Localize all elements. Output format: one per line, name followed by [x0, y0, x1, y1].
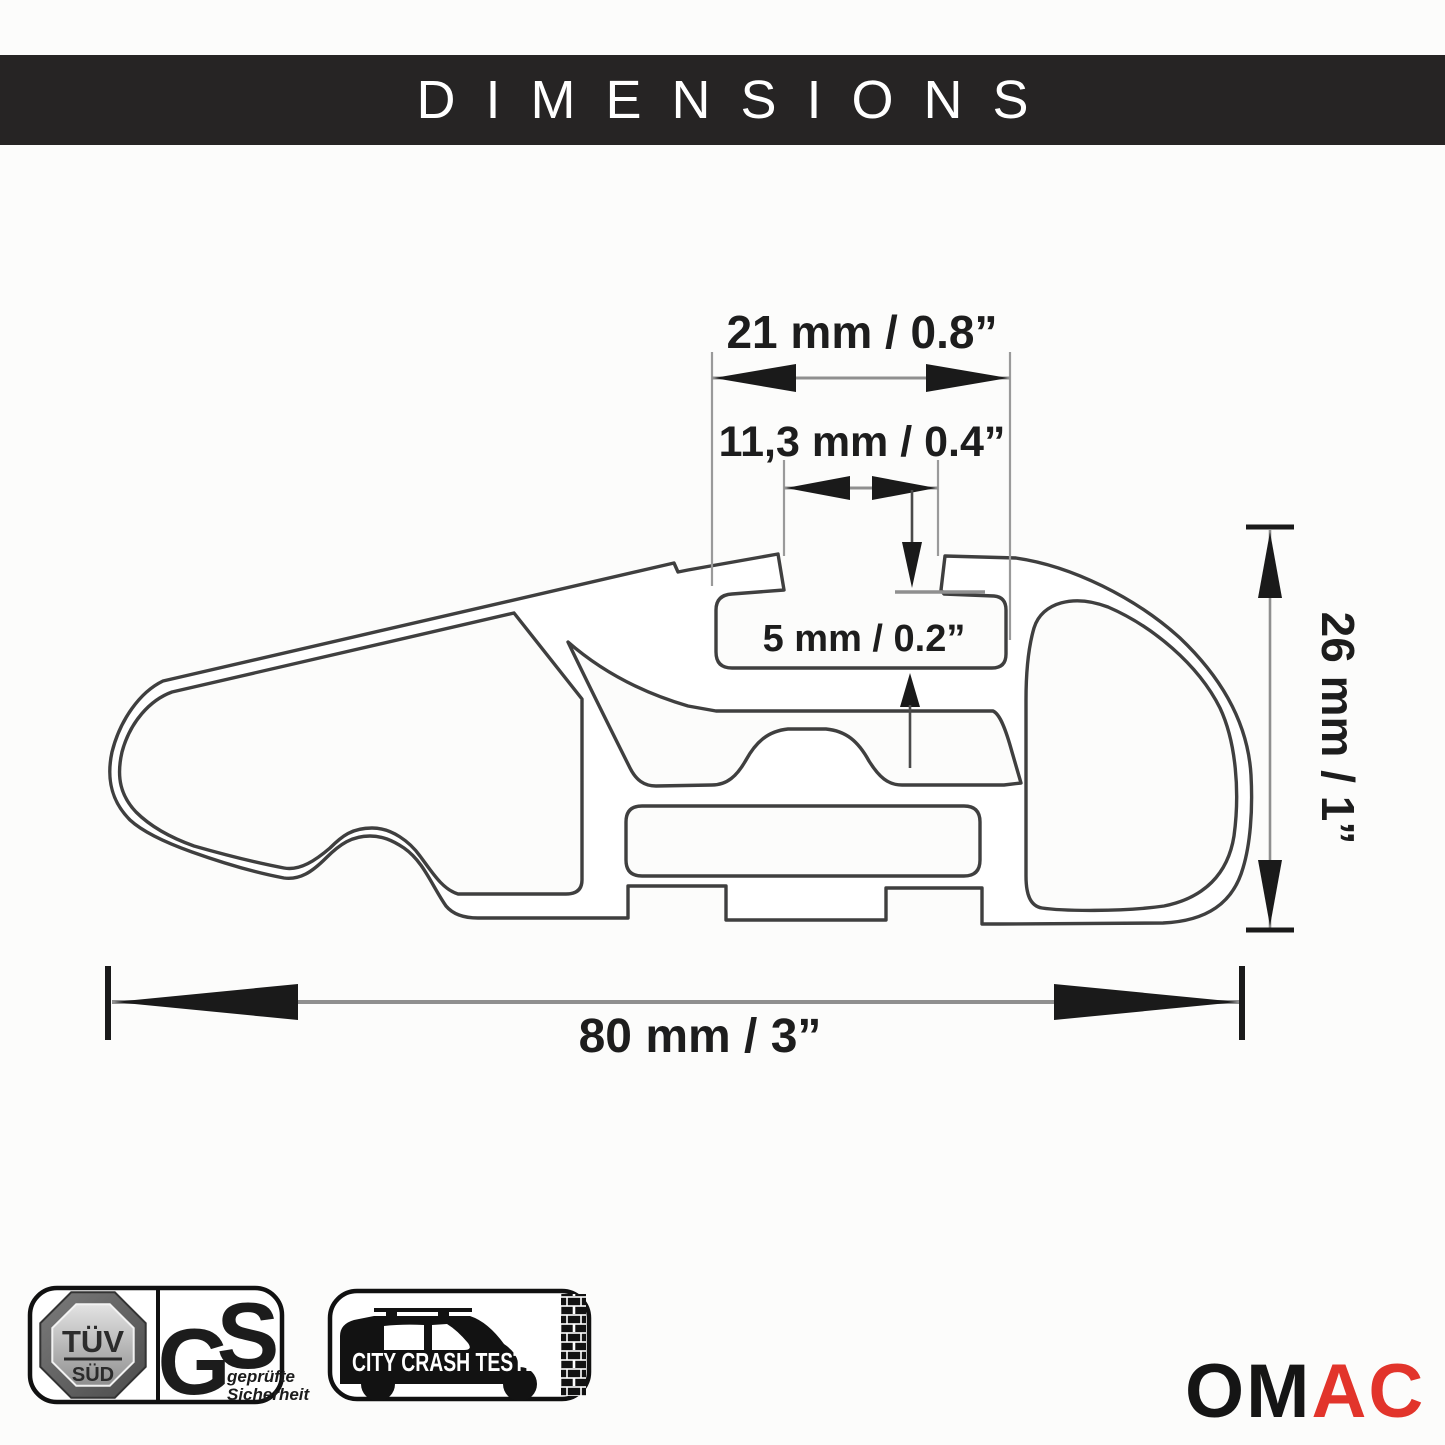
arrowhead-down-icon [1258, 860, 1282, 926]
arrowhead-up-icon [1258, 532, 1282, 598]
arrowhead-down-icon [902, 542, 922, 588]
arrowhead-right-icon [1054, 984, 1238, 1020]
city-crash-tested-badge: CITY CRASH TESTED [330, 1291, 589, 1401]
dim-80mm-label: 80 mm / 3” [579, 1010, 822, 1063]
omac-logo-red-part: AC [1311, 1349, 1425, 1434]
tuv-text: TÜV [62, 1324, 124, 1359]
sud-text: SÜD [72, 1363, 114, 1386]
omac-logo-black-part: OM [1185, 1349, 1311, 1434]
dim-21mm-label: 21 mm / 0.8” [726, 306, 997, 358]
dimension-26mm: 26 mm / 1” [1246, 527, 1364, 930]
dimension-5mm: 5 mm / 0.2” [763, 490, 985, 768]
dimensions-diagram: 21 mm / 0.8” 11,3 mm / 0.4” 5 mm / 0.2” … [0, 0, 1445, 1445]
tuv-sud-logo-icon: TÜV SÜD [40, 1292, 145, 1397]
dimension-11-3mm: 11,3 mm / 0.4” [719, 418, 1006, 556]
arrowhead-right-icon [926, 364, 1008, 392]
city-crash-tested-label: CITY CRASH TESTED [352, 1347, 552, 1377]
gs-caption-line2: Sicherheit [227, 1385, 311, 1404]
dim-11-3mm-label: 11,3 mm / 0.4” [719, 418, 1006, 466]
gs-caption-line1: geprüfte [226, 1367, 295, 1386]
brick-wall-icon [561, 1294, 586, 1396]
dim-26mm-label: 26 mm / 1” [1312, 612, 1364, 845]
arrowhead-left-icon [114, 984, 298, 1020]
tuv-gs-badge: TÜV SÜD G S geprüfte Sicherheit [30, 1283, 311, 1414]
omac-logo: OMAC [1185, 1348, 1425, 1435]
arrowhead-left-icon [786, 476, 850, 500]
profile-cross-section [110, 554, 1252, 924]
dimension-80mm: 80 mm / 3” [108, 966, 1242, 1063]
dim-5mm-label: 5 mm / 0.2” [763, 618, 966, 660]
arrowhead-right-icon [872, 476, 936, 500]
arrowhead-left-icon [714, 364, 796, 392]
